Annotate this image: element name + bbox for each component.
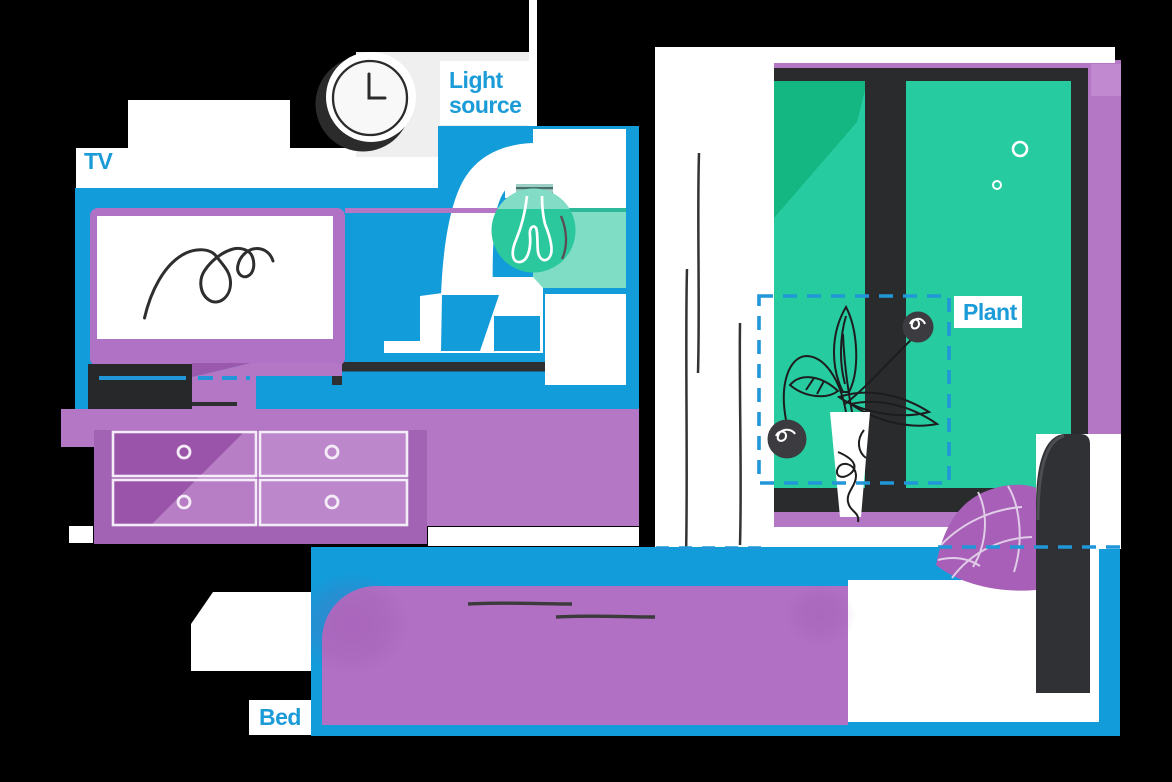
- svg-text:Plant: Plant: [963, 299, 1018, 325]
- svg-text:source: source: [449, 92, 521, 118]
- svg-text:Light: Light: [449, 67, 504, 93]
- svg-text:Bed: Bed: [259, 704, 301, 730]
- svg-text:TV: TV: [84, 148, 114, 174]
